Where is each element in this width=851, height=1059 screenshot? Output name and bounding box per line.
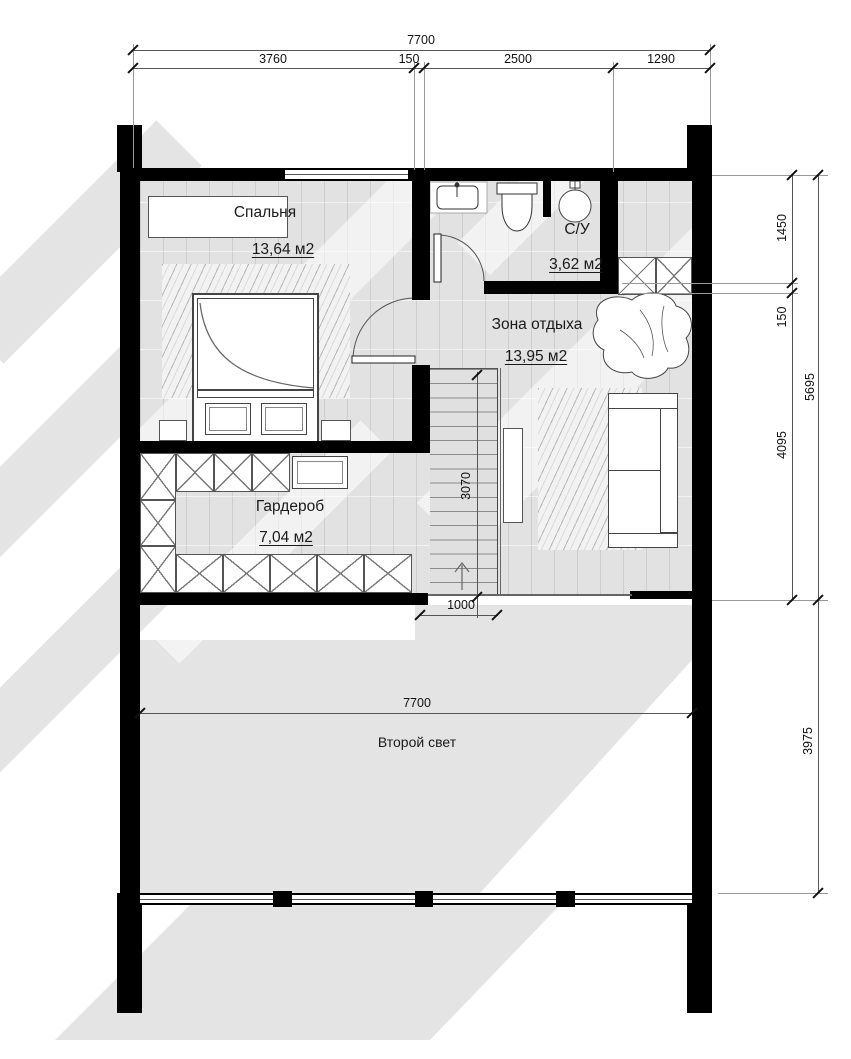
dim-top-seg4: 1290: [611, 52, 711, 66]
bathroom-door-leaf: [434, 234, 441, 282]
extension-line: [613, 62, 614, 172]
bathroom-door-arc: [438, 235, 484, 281]
wall-bathroom-bottom: [484, 281, 618, 294]
column-top-right: [687, 125, 712, 172]
void-railing-line: [428, 594, 632, 596]
room-label-lounge: Зона отдыха: [447, 316, 627, 334]
dim-line-mid-width: [140, 713, 692, 714]
window-mullion: [273, 891, 292, 907]
dim-right-bottom: 3975: [801, 701, 815, 781]
bedroom-door-arc: [353, 298, 415, 360]
dim-top-seg3: 2500: [468, 52, 568, 66]
dim-line-top-total: [133, 50, 710, 51]
plant-icon: [593, 293, 691, 379]
stair-up-arrow: [455, 563, 469, 590]
room-label-bedroom: Спальня: [195, 204, 335, 222]
dim-stair-exit: 1000: [421, 598, 501, 612]
room-label-second-light: Второй свет: [327, 734, 507, 750]
floor-plan-canvas: Спальня 13,64 м2 С/У 3,62 м2 Зона отдыха…: [0, 0, 851, 1059]
dim-line-right-outer: [818, 175, 819, 893]
wall-bedroom-right-lower: [412, 365, 430, 453]
extension-line: [712, 600, 828, 601]
dim-top-total: 7700: [371, 33, 471, 47]
extension-line: [718, 893, 828, 894]
extension-line: [622, 293, 798, 294]
dim-right-seg2: 150: [775, 277, 789, 357]
wall-bathroom-partition: [543, 172, 551, 217]
window-mullion: [415, 891, 433, 907]
extension-line: [133, 44, 134, 168]
toilet-bowl: [502, 194, 532, 231]
dim-top-seg2: 150: [379, 52, 439, 66]
wall-lounge-edge: [630, 591, 692, 599]
wall-wardrobe-bottom: [120, 593, 428, 605]
room-area-bathroom: 3,62 м2: [516, 256, 636, 274]
dim-mid-width: 7700: [367, 696, 467, 710]
wall-bedroom-bottom: [130, 441, 430, 453]
extension-line: [712, 175, 828, 176]
wall-bedroom-right-upper: [412, 172, 430, 300]
column-bottom-right: [687, 893, 712, 1013]
toilet-tank: [497, 183, 537, 194]
dim-stair-run: 3070: [459, 446, 473, 526]
room-area-wardrobe: 7,04 м2: [216, 529, 356, 547]
column-top-left: [117, 125, 142, 172]
dim-right-seg3: 4095: [775, 405, 789, 485]
wall-left: [120, 168, 140, 895]
blanket-curve: [200, 303, 314, 388]
wall-right: [692, 168, 712, 895]
room-label-bathroom: С/У: [537, 221, 617, 239]
dim-right-seg1: 1450: [775, 188, 789, 268]
dim-line-right-inner: [792, 175, 793, 600]
dim-line-stair-exit: [420, 615, 498, 616]
sink-faucet-dot: [455, 183, 460, 188]
window-mullion: [556, 891, 575, 907]
window-top: [285, 168, 408, 181]
dim-right-total: 5695: [803, 347, 817, 427]
extension-line: [424, 62, 425, 170]
dim-line-stair-run: [477, 372, 478, 618]
room-area-lounge: 13,95 м2: [466, 348, 606, 366]
extension-line: [414, 62, 415, 170]
bedroom-door-leaf: [352, 356, 415, 363]
room-label-wardrobe: Гардероб: [210, 498, 370, 516]
dim-top-seg1: 3760: [223, 52, 323, 66]
room-area-bedroom: 13,64 м2: [213, 241, 353, 259]
shower-head-icon: [559, 190, 591, 222]
extension-line: [622, 283, 798, 284]
column-bottom-left: [117, 893, 142, 1013]
